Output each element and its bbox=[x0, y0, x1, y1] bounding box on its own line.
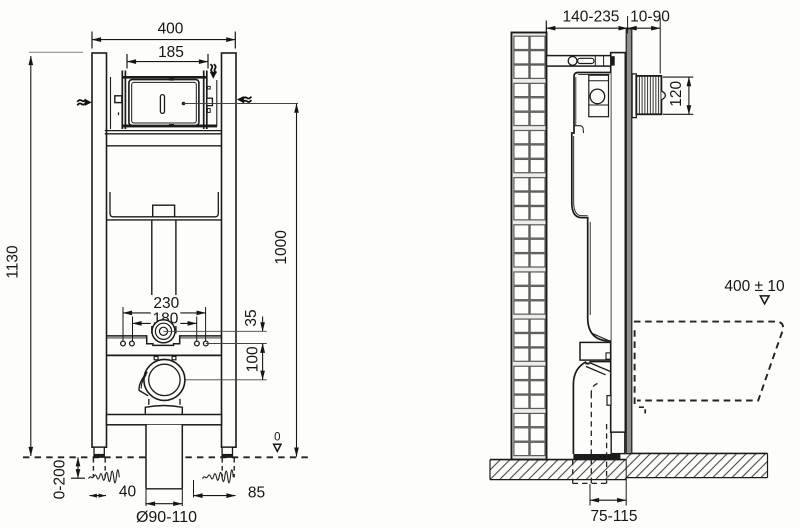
svg-text:0: 0 bbox=[274, 432, 280, 444]
svg-text:75-115: 75-115 bbox=[590, 508, 637, 525]
svg-text:400 ± 10: 400 ± 10 bbox=[724, 278, 785, 295]
svg-text:120: 120 bbox=[668, 80, 685, 106]
svg-text:85: 85 bbox=[248, 485, 265, 502]
svg-text:0-200: 0-200 bbox=[52, 459, 69, 499]
svg-text:100: 100 bbox=[245, 346, 262, 372]
svg-text:1130: 1130 bbox=[4, 245, 21, 279]
svg-text:400: 400 bbox=[158, 20, 184, 37]
svg-text:10-90: 10-90 bbox=[630, 8, 670, 25]
svg-text:230: 230 bbox=[153, 295, 179, 312]
svg-text:40: 40 bbox=[119, 484, 137, 501]
svg-text:35: 35 bbox=[243, 309, 260, 326]
svg-text:Ø90-110: Ø90-110 bbox=[136, 509, 197, 526]
svg-text:140-235: 140-235 bbox=[563, 8, 620, 25]
svg-text:1000: 1000 bbox=[273, 230, 290, 265]
svg-text:185: 185 bbox=[158, 44, 184, 61]
